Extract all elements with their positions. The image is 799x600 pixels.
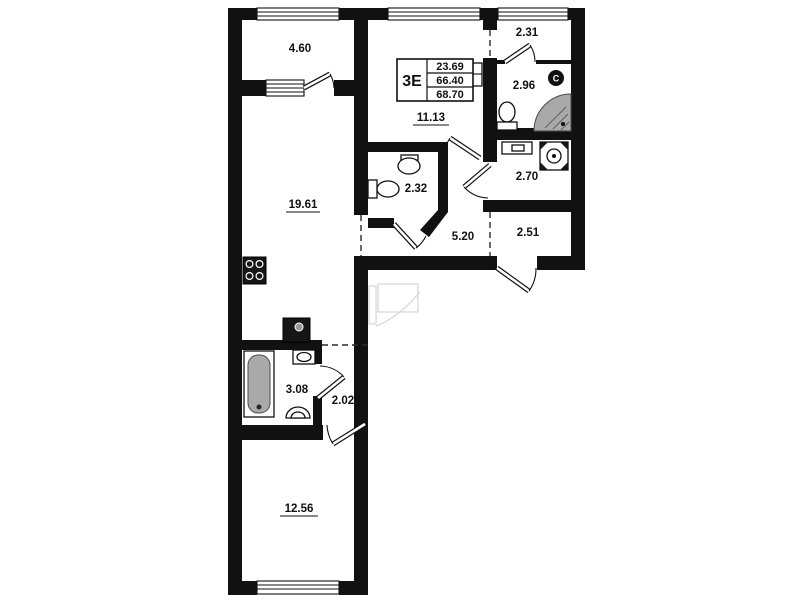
stamp-living-area: 23.69 [436, 61, 464, 73]
door-leaf [497, 268, 529, 291]
door-swing-arc [530, 45, 535, 62]
window-halltop [498, 8, 568, 20]
floor-plan-image: C [0, 0, 799, 600]
sink-icon [502, 142, 532, 154]
room-label-storage: 2.70 [516, 171, 538, 183]
door-halltop-bathroom [505, 45, 535, 62]
partition-halltop-a [497, 60, 505, 64]
door-leaf [464, 165, 490, 187]
window-frame [257, 581, 339, 594]
vent-label: C [553, 74, 560, 84]
shower-icon [534, 94, 571, 131]
window-room-top [388, 8, 480, 20]
wall-entry-bottom [537, 256, 585, 270]
room-label-entry-hall: 2.51 [517, 227, 540, 239]
wall-left-exterior [228, 8, 242, 595]
door-swing-arc [320, 366, 344, 377]
window-frame [388, 8, 480, 20]
wall-balcony-bottom-b [334, 80, 354, 96]
wall-bottom-a [228, 581, 257, 595]
ghost-outline [369, 284, 420, 326]
wall-wc-right [438, 142, 448, 212]
door-leaf [394, 224, 416, 248]
door-leaf [304, 74, 330, 88]
door-wc [394, 224, 426, 248]
wall-wc-top [368, 142, 448, 152]
door-swing-arc [416, 236, 426, 248]
sink-icon [293, 350, 315, 364]
floor-plan-page: C [0, 0, 799, 600]
partition-halltop-b [536, 60, 571, 64]
room-label-corridor: 5.20 [452, 231, 474, 243]
wall-bottom-b [339, 581, 368, 595]
wall-room-right-stub [483, 8, 497, 30]
room-label-wc: 2.32 [405, 183, 427, 195]
stamp-type-label: 3Е [402, 73, 422, 90]
toilet-icon [497, 102, 517, 130]
sink-icon [398, 155, 420, 174]
door-leaf [505, 45, 530, 62]
room-label-bathroom-top: 2.96 [513, 80, 535, 92]
toilet-icon [286, 407, 310, 418]
room-label-bedroom: 12.56 [285, 503, 314, 515]
door-room-top [444, 138, 480, 158]
door-bathroom [318, 366, 344, 398]
room-label-kitchen-living: 19.61 [289, 199, 318, 211]
wall-bedroom-top [242, 425, 323, 440]
window-balcony-sill [266, 80, 304, 96]
stove-icon [243, 257, 266, 284]
room-label-hall: 2.02 [332, 395, 354, 407]
stamp-apartment-area: 66.40 [436, 75, 464, 87]
door-balcony [304, 74, 334, 88]
bathtub-icon [244, 351, 274, 417]
room-label-hall-top: 2.31 [516, 27, 539, 39]
door-storage [464, 165, 490, 198]
wall-corridor-bottom [368, 256, 497, 270]
wall-wc-chamfer [420, 210, 448, 237]
stamp-total-area: 68.70 [436, 89, 464, 101]
window-bedroom-bottom [257, 581, 339, 594]
wall-storage-entry-divider [483, 200, 585, 212]
apartment-stamp: 3Е 23.69 66.40 68.70 [397, 59, 473, 101]
door-swing-arc [330, 74, 334, 88]
wall-right-exterior [571, 8, 585, 270]
room-label-room-top: 11.13 [417, 112, 445, 124]
window-frame [257, 8, 339, 20]
window-frame [498, 8, 568, 20]
door-swing-arc [529, 268, 536, 291]
door-swing-arc [464, 187, 488, 198]
vent-icon: C [548, 70, 564, 86]
door-entrance [497, 268, 536, 291]
toilet-icon [368, 180, 399, 198]
window-balcony-top [257, 8, 339, 20]
door-swing-arc [327, 425, 333, 444]
wall-balcony-bottom-a [242, 80, 266, 96]
wall-wc-bottom [368, 218, 394, 228]
wall-mid-divider-upper [354, 8, 368, 215]
room-label-balcony: 4.60 [289, 43, 311, 55]
wall-bathroom-top-left [483, 58, 497, 162]
vent-duct-icon [283, 318, 310, 342]
washing-machine-icon [540, 142, 568, 170]
room-label-bathroom: 3.08 [286, 384, 309, 396]
door-leaf [450, 138, 480, 158]
wall-bathroom-right-b [313, 396, 322, 427]
wall-top-a [228, 8, 257, 20]
